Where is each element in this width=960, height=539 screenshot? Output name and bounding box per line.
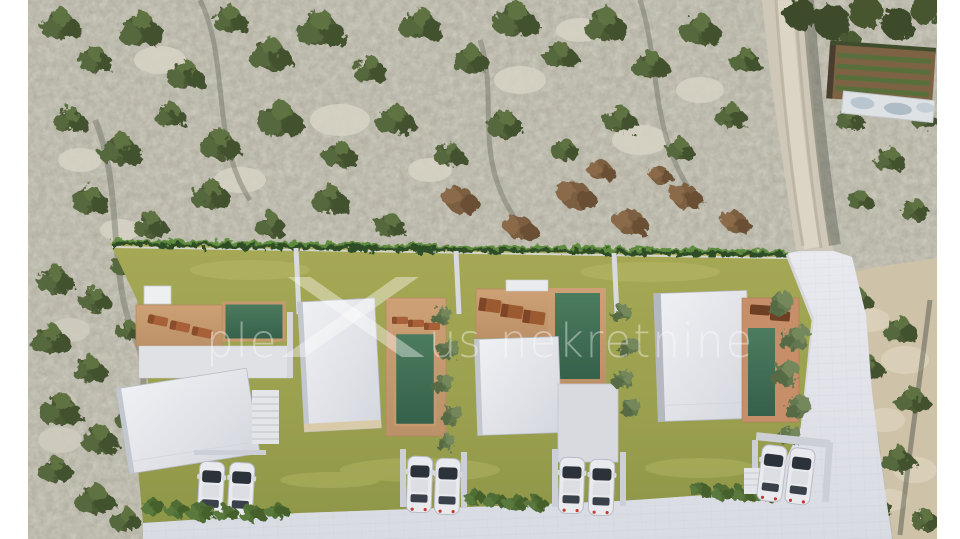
house-roof	[298, 298, 382, 432]
garage-wall	[620, 452, 626, 506]
pool-house	[144, 286, 171, 304]
garage-wall	[194, 450, 266, 455]
house-roof	[654, 290, 751, 421]
parcel-divider-wall	[456, 251, 459, 314]
development-plot	[110, 241, 892, 539]
frame-left	[0, 0, 28, 539]
aerial-render-photo: ple us nekretnine	[0, 0, 960, 539]
roof-annex	[558, 384, 618, 462]
swimming-pool	[555, 293, 600, 379]
parked-car	[556, 457, 587, 514]
scene-canvas	[0, 0, 960, 539]
house-roof	[474, 337, 561, 436]
parked-car	[404, 456, 435, 513]
parcel-divider-wall	[614, 253, 617, 314]
pergola	[506, 280, 548, 291]
parked-car	[432, 458, 463, 515]
garage-wall	[552, 449, 558, 507]
parked-car	[586, 459, 617, 516]
stairs	[252, 390, 279, 444]
swimming-pool	[748, 328, 775, 416]
swimming-pool	[224, 303, 284, 340]
side-wall	[287, 312, 293, 378]
frame-right	[937, 0, 960, 539]
garage-wall	[400, 449, 406, 507]
swimming-pool	[395, 333, 435, 425]
